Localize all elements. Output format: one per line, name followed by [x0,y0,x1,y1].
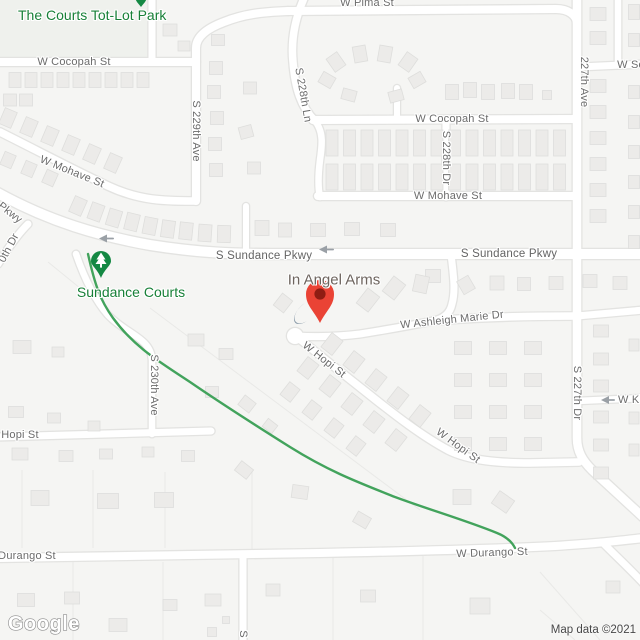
map-canvas [0,0,640,640]
google-logo[interactable]: Google [6,610,84,636]
map-attribution: Map data ©2021 [551,624,636,636]
map-viewport[interactable]: W Cocopah StS 229th AveW Pima StS 228th … [0,0,640,640]
park-area [0,0,148,58]
svg-text:Google: Google [8,613,80,635]
place-label-in-angel-arms[interactable]: In Angel Arms [288,272,381,289]
